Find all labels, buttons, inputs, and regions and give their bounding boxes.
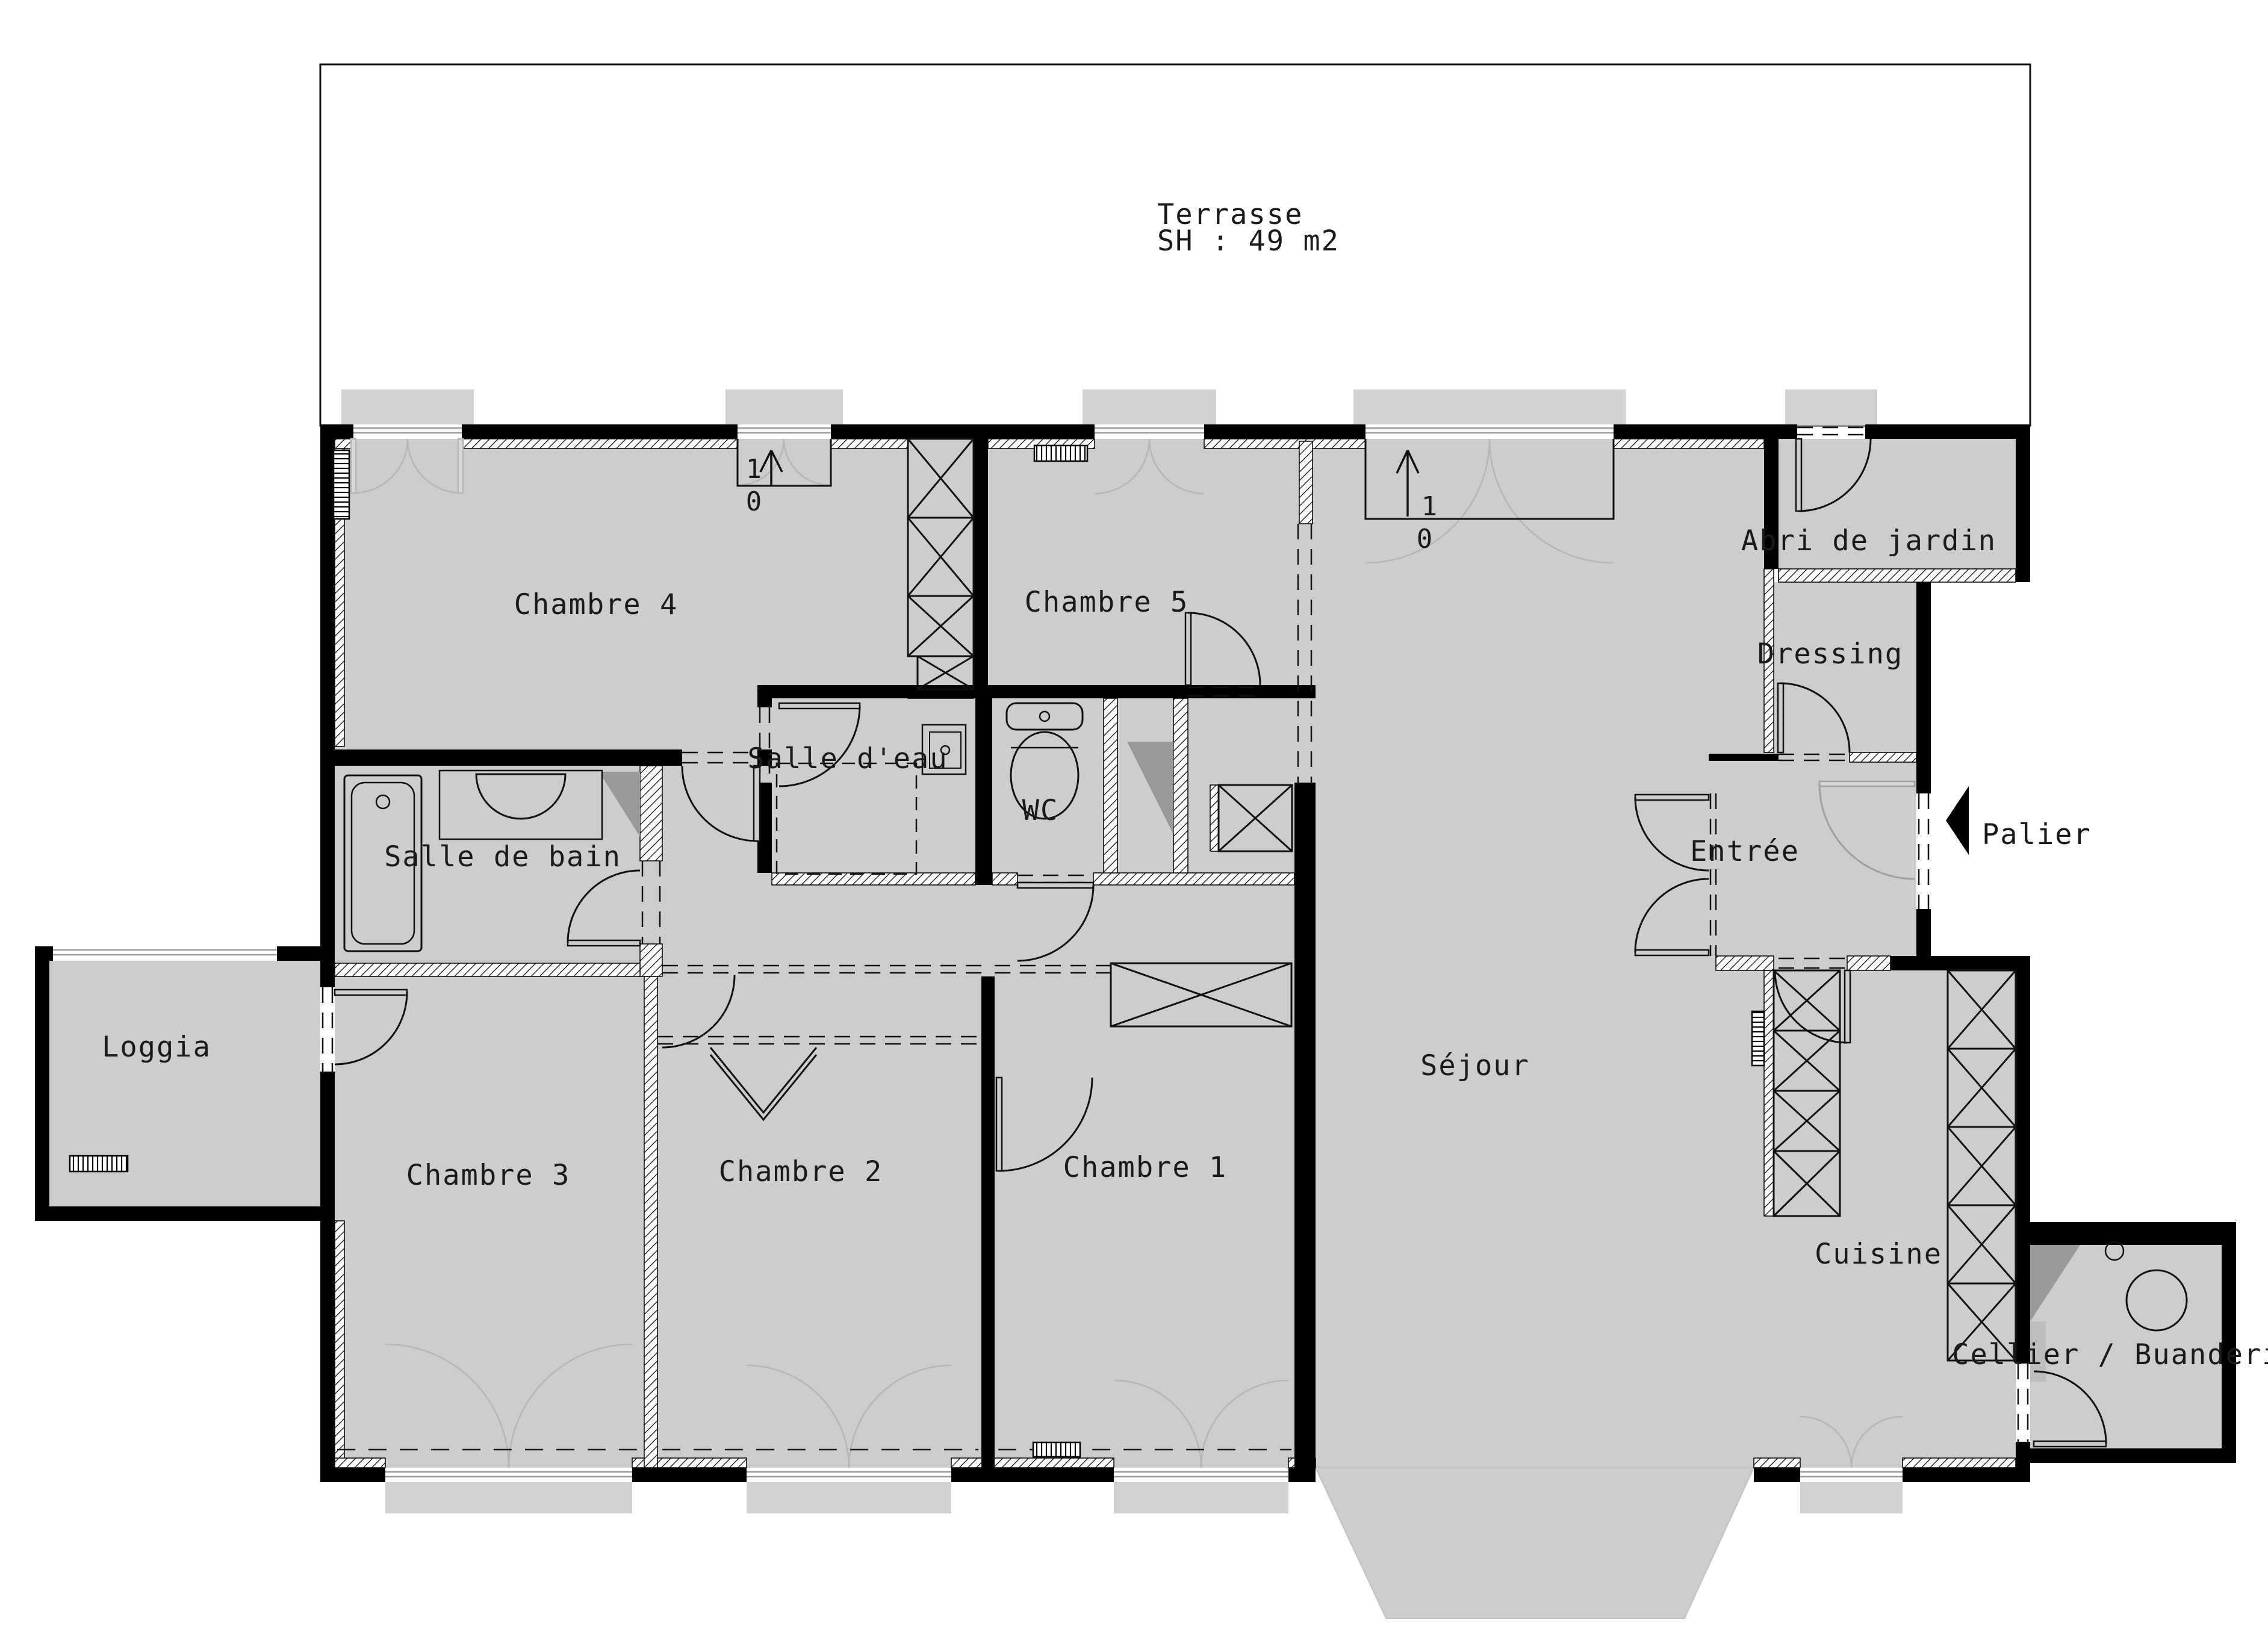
label-sejour: Séjour [1420,1049,1530,1082]
stair-level-up: 1 [1421,491,1438,522]
label-cuisine: Cuisine [1815,1238,1942,1271]
terrace: Terrasse SH : 49 m2 [320,64,2030,426]
threshold [341,389,474,426]
palier-arrow-icon [1946,786,1969,855]
label-cellier: Cellier / Buanderie [1952,1338,2268,1371]
floor-plan-svg: Terrasse SH : 49 m2 [0,0,2268,1623]
threshold [1800,1482,1903,1513]
label-chambre2: Chambre 2 [719,1155,883,1188]
threshold [1114,1482,1288,1513]
terrace-area-label: SH : 49 m2 [1157,225,1340,258]
threshold [385,1482,632,1513]
threshold [725,389,843,426]
floor-bay-window-sejour [1316,1468,1754,1618]
window-chambre1 [1114,1468,1288,1482]
window-chambre4-left [353,424,462,439]
vanity-sink-icon [440,771,602,839]
palier-label: Palier [1982,818,2092,851]
label-chambre5: Chambre 5 [1025,586,1189,619]
window-chambre4-right [738,424,831,439]
window-cuisine [1800,1468,1903,1482]
threshold [1785,389,1877,426]
radiator-icon [70,1156,128,1171]
window-sejour [1365,424,1614,439]
label-chambre3: Chambre 3 [406,1159,571,1192]
stair-level-up: 1 [746,454,762,485]
threshold [747,1482,951,1513]
radiator-icon [1752,1011,1764,1066]
label-salle-bain: Salle de bain [384,840,621,874]
label-loggia: Loggia [102,1031,211,1064]
label-abri: Abri de jardin [1741,524,1996,557]
window-chambre3 [385,1468,632,1482]
stair-level-down: 0 [746,486,762,517]
radiator-icon [1033,1442,1080,1457]
stair-level-down: 0 [1417,524,1433,554]
label-entree: Entrée [1690,835,1800,868]
window-chambre5 [1095,424,1204,439]
radiator-icon [1034,445,1087,461]
radiator-icon [334,450,349,519]
palier-entrance: Palier [1946,786,2092,855]
label-chambre1: Chambre 1 [1063,1151,1228,1184]
window-chambre2 [747,1468,951,1482]
label-chambre4: Chambre 4 [514,588,679,621]
threshold [1083,389,1216,426]
label-dressing: Dressing [1757,638,1903,671]
label-wc: WC [1022,794,1059,827]
floor-cuisine [1774,970,2016,1468]
window-loggia [53,946,277,961]
threshold [1353,389,1626,426]
label-salle-eau: Salle d'eau [747,742,948,775]
floor-plan: Terrasse SH : 49 m2 [0,0,2268,1623]
